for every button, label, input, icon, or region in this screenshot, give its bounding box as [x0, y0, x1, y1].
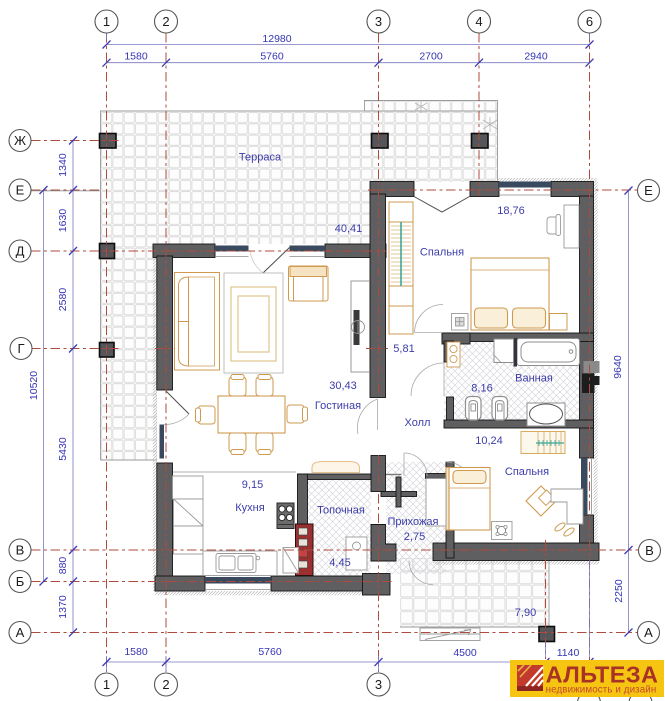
- svg-text:10520: 10520: [28, 371, 40, 400]
- svg-text:Прихожая: Прихожая: [388, 516, 439, 528]
- svg-text:5430: 5430: [57, 437, 69, 461]
- svg-text:1: 1: [103, 677, 110, 692]
- svg-text:4,45: 4,45: [329, 557, 350, 569]
- svg-text:Холл: Холл: [405, 417, 431, 429]
- svg-text:2,75: 2,75: [404, 531, 425, 543]
- svg-text:12980: 12980: [262, 33, 291, 45]
- svg-text:2940: 2940: [524, 51, 548, 63]
- svg-text:10,24: 10,24: [475, 435, 503, 447]
- svg-text:4: 4: [475, 14, 482, 29]
- svg-text:Спальня: Спальня: [420, 247, 464, 259]
- svg-text:1630: 1630: [57, 209, 69, 233]
- svg-text:18,76: 18,76: [497, 205, 525, 217]
- svg-text:А: А: [644, 625, 653, 640]
- svg-text:Терраса: Терраса: [239, 152, 282, 164]
- svg-text:Е: Е: [16, 183, 25, 198]
- svg-text:Б: Б: [16, 574, 25, 589]
- svg-text:1: 1: [103, 14, 110, 29]
- svg-text:8,16: 8,16: [471, 383, 492, 395]
- svg-text:1370: 1370: [57, 595, 69, 619]
- svg-text:Г: Г: [17, 341, 24, 356]
- svg-text:1340: 1340: [57, 153, 69, 177]
- svg-text:1580: 1580: [124, 646, 148, 658]
- svg-text:Ванная: Ванная: [515, 373, 553, 385]
- svg-text:3: 3: [375, 677, 382, 692]
- svg-text:1580: 1580: [124, 51, 148, 63]
- svg-text:2: 2: [162, 677, 169, 692]
- svg-text:5760: 5760: [258, 646, 282, 658]
- svg-text:2250: 2250: [613, 579, 625, 603]
- svg-text:Ж: Ж: [14, 133, 26, 148]
- svg-text:4500: 4500: [453, 647, 477, 659]
- svg-text:5,81: 5,81: [393, 343, 414, 355]
- svg-text:Гостиная: Гостиная: [315, 400, 361, 412]
- svg-text:2700: 2700: [419, 51, 443, 63]
- svg-text:Топочная: Топочная: [317, 505, 365, 517]
- svg-text:А: А: [16, 625, 25, 640]
- svg-text:Кухня: Кухня: [235, 502, 264, 514]
- svg-text:3: 3: [375, 14, 382, 29]
- svg-text:В: В: [645, 543, 654, 558]
- svg-text:40,41: 40,41: [335, 223, 363, 235]
- svg-text:недвижимость и дизайн: недвижимость и дизайн: [546, 685, 657, 696]
- svg-text:2: 2: [162, 14, 169, 29]
- svg-text:Д: Д: [16, 244, 25, 259]
- svg-text:6: 6: [586, 14, 593, 29]
- svg-text:2580: 2580: [57, 288, 69, 312]
- svg-text:В: В: [16, 543, 25, 558]
- svg-text:9,15: 9,15: [242, 479, 263, 491]
- svg-text:Е: Е: [644, 183, 653, 198]
- svg-text:Спальня: Спальня: [505, 466, 549, 478]
- svg-text:7,90: 7,90: [515, 607, 536, 619]
- svg-text:5760: 5760: [260, 51, 284, 63]
- svg-text:9640: 9640: [612, 355, 624, 379]
- svg-text:30,43: 30,43: [329, 380, 357, 392]
- svg-text:880: 880: [57, 557, 69, 575]
- svg-text:1140: 1140: [557, 647, 580, 659]
